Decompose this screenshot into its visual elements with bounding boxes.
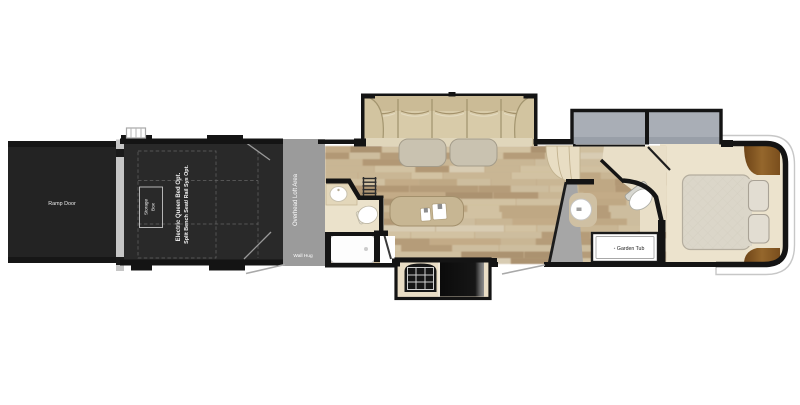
svg-text:Wall Hug: Wall Hug [293, 253, 313, 259]
svg-text:Ramp Door: Ramp Door [48, 201, 76, 207]
svg-text:Overhead Loft Area: Overhead Loft Area [293, 173, 299, 226]
svg-text:Electric Queen Bed Opt.: Electric Queen Bed Opt. [176, 172, 182, 241]
svg-text:Split Bench Seat/ Rail Sys Opt: Split Bench Seat/ Rail Sys Opt. [184, 165, 190, 244]
svg-text:◦ Garden Tub: ◦ Garden Tub [614, 246, 645, 252]
svg-text:Box: Box [151, 202, 156, 211]
svg-text:Storage: Storage [144, 199, 149, 216]
